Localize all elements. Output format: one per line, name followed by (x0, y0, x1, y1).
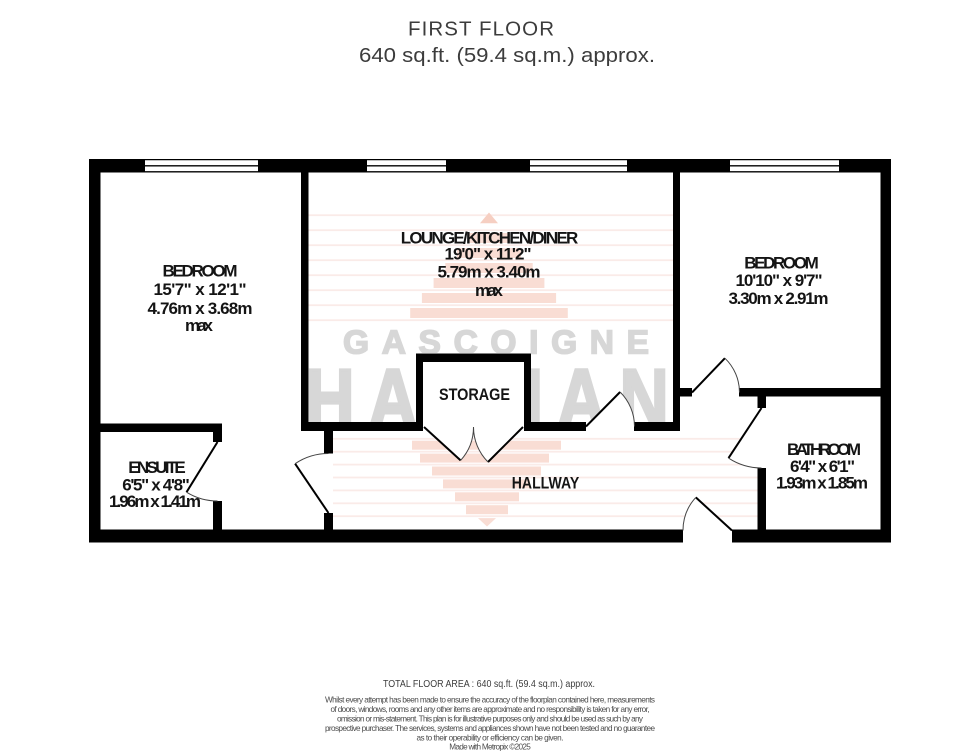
svg-text:HALLWAY: HALLWAY (512, 474, 580, 493)
svg-text:1.96m x 1.41m: 1.96m x 1.41m (109, 492, 201, 511)
svg-text:Made with Metropix ©2025: Made with Metropix ©2025 (449, 743, 531, 751)
svg-text:640 sq.ft. (59.4 sq.m.) approx: 640 sq.ft. (59.4 sq.m.) approx. (359, 44, 655, 67)
svg-text:of doors, windows, rooms and a: of doors, windows, rooms and any other i… (331, 705, 650, 714)
svg-text:15'7" x 12'1": 15'7" x 12'1" (154, 280, 247, 299)
svg-text:ENSUITE: ENSUITE (128, 458, 186, 477)
svg-text:5.79m x 3.40m: 5.79m x 3.40m (438, 263, 541, 282)
svg-text:19'0" x 11'2": 19'0" x 11'2" (445, 245, 532, 264)
svg-text:BEDROOM: BEDROOM (163, 262, 238, 281)
svg-text:3.30m x 2.91m: 3.30m x 2.91m (729, 289, 829, 308)
svg-text:Whilst every attempt has been: Whilst every attempt has been made to en… (325, 696, 655, 705)
svg-text:FIRST FLOOR: FIRST FLOOR (408, 18, 554, 41)
svg-text:BEDROOM: BEDROOM (744, 254, 819, 273)
svg-text:TOTAL FLOOR AREA : 640 sq.ft.: TOTAL FLOOR AREA : 640 sq.ft. (59.4 sq.m… (383, 679, 595, 690)
svg-text:10'10" x 9'7": 10'10" x 9'7" (736, 271, 823, 290)
svg-text:omission or mis-statement. Thi: omission or mis-statement. This plan is … (337, 715, 644, 724)
svg-text:prospective purchaser. The ser: prospective purchaser. The services, sys… (325, 724, 655, 733)
svg-text:max: max (185, 316, 214, 335)
svg-text:as to their operability or eff: as to their operability or efficiency ca… (417, 734, 564, 743)
svg-text:STORAGE: STORAGE (439, 385, 510, 404)
svg-text:1.93m x 1.85m: 1.93m x 1.85m (776, 474, 868, 493)
svg-text:max: max (475, 281, 504, 300)
